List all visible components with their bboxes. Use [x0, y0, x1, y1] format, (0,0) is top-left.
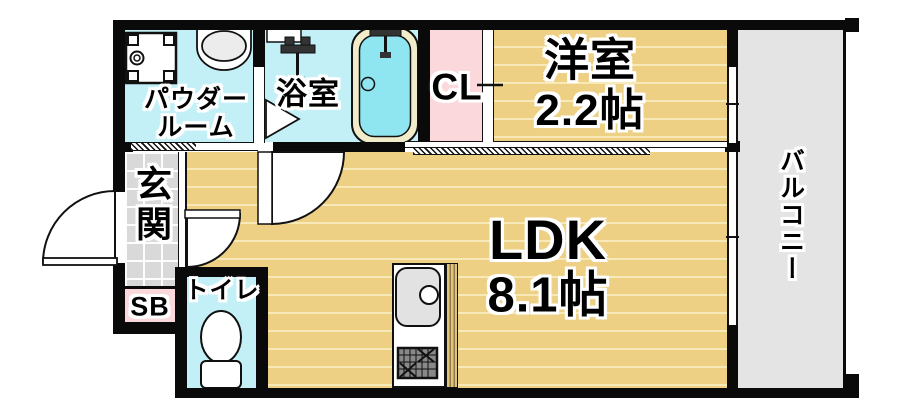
wall-segment [253, 30, 265, 67]
wall-segment [113, 20, 125, 192]
sliding-door-powder-room [131, 142, 196, 151]
wall-segment [273, 142, 405, 152]
label-western-room-size: 2.2帖 [535, 89, 644, 133]
label-western-room: 洋室 [544, 38, 636, 83]
label-shoe-box: SB [130, 294, 170, 321]
label-entrance: 玄関 [133, 165, 169, 245]
kitchen-counter-edge [446, 263, 458, 388]
label-balcony: バルコニー [778, 148, 803, 283]
entry-door-arc [43, 191, 117, 265]
wall-segment [113, 142, 133, 152]
window-ldk-balcony-door [727, 152, 738, 325]
wall-segment [727, 325, 738, 398]
entrance-step-edge [178, 152, 187, 267]
window-meeting-rail [726, 236, 739, 238]
floor-plan: パウダー ルーム 浴室 CL 洋室 2.2帖 バルコニー 玄関 SB トイレ L… [0, 0, 902, 416]
label-toilet: トイレ [185, 279, 260, 303]
sliding-door-opening [196, 142, 258, 151]
bathroom-door-opening [253, 67, 265, 143]
label-closet: CL [431, 69, 482, 106]
wall-segment [113, 20, 858, 30]
label-ldk: LDK [489, 212, 607, 268]
label-ldk-size: 8.1帖 [487, 272, 608, 321]
label-powder-room-line1: パウダー [144, 88, 248, 113]
wall-segment [175, 267, 268, 277]
window-meeting-rail [726, 103, 739, 105]
balcony-railing-cap [845, 18, 859, 32]
balcony-railing-cap [845, 374, 859, 398]
wall-segment [418, 30, 430, 142]
balcony-railing [843, 26, 846, 390]
closet-door [482, 30, 494, 142]
kitchen-counter [392, 263, 446, 388]
wall-segment [175, 388, 858, 398]
sliding-door-western-room [413, 147, 650, 155]
wall-segment [727, 20, 738, 67]
label-bathroom: 浴室 [276, 79, 340, 110]
label-powder-room-line2: ルーム [157, 116, 234, 141]
window-western-room [727, 67, 738, 143]
